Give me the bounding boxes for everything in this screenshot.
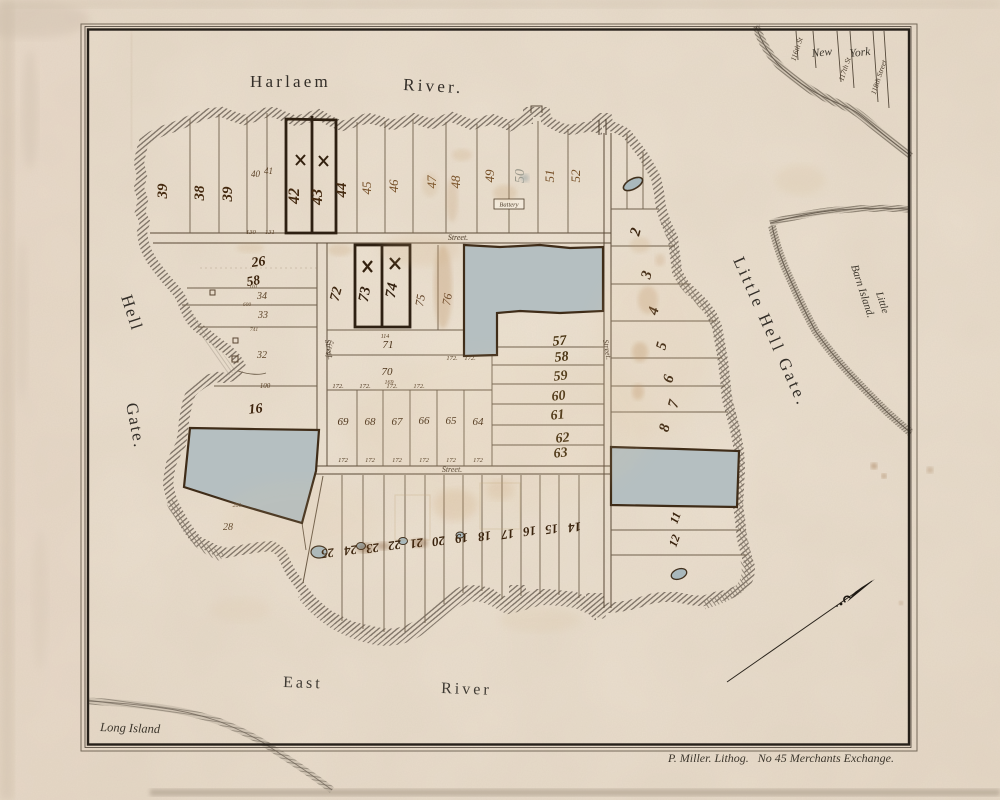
svg-text:69: 69 (338, 416, 350, 428)
svg-text:New: New (810, 46, 833, 60)
svg-text:26: 26 (250, 254, 267, 271)
svg-text:39: 39 (155, 183, 171, 200)
svg-text:19: 19 (454, 530, 469, 547)
svg-text:34: 34 (256, 291, 267, 302)
svg-text:38: 38 (192, 185, 208, 202)
svg-text:130: 130 (246, 229, 257, 236)
svg-text:172.: 172. (359, 383, 371, 390)
svg-text:39: 39 (220, 186, 236, 203)
svg-text:River.: River. (403, 75, 464, 97)
svg-text:49: 49 (482, 169, 497, 183)
svg-text:York: York (849, 46, 872, 60)
svg-text:Battery: Battery (499, 202, 518, 209)
svg-text:46: 46 (386, 179, 401, 193)
svg-text:17: 17 (500, 526, 515, 543)
svg-text:42: 42 (286, 188, 303, 205)
svg-text:600: 600 (243, 302, 252, 308)
svg-text:15: 15 (544, 521, 559, 538)
svg-text:44: 44 (334, 182, 350, 199)
svg-text:Long Island: Long Island (99, 720, 161, 736)
svg-text:45: 45 (359, 181, 374, 195)
svg-text:172.: 172. (332, 383, 344, 390)
svg-text:40: 40 (251, 169, 261, 179)
svg-text:172: 172 (338, 457, 349, 464)
svg-text:43: 43 (309, 189, 326, 206)
svg-text:100: 100 (260, 382, 271, 390)
svg-text:18: 18 (477, 528, 492, 545)
svg-text:33: 33 (257, 310, 268, 321)
svg-text:741: 741 (250, 326, 259, 333)
svg-text:East: East (283, 674, 323, 692)
svg-text:14: 14 (567, 519, 582, 536)
svg-text:131: 131 (265, 229, 275, 236)
svg-text:P. Miller. Lithog. No 45 Mer: P. Miller. Lithog. No 45 Merchants Excha… (667, 751, 894, 765)
svg-text:16: 16 (522, 523, 537, 540)
svg-text:52: 52 (568, 169, 583, 183)
svg-text:51: 51 (542, 170, 557, 183)
svg-text:75: 75 (412, 293, 428, 307)
svg-text:16: 16 (248, 401, 263, 417)
svg-text:32: 32 (256, 350, 267, 361)
svg-text:River: River (441, 680, 492, 699)
svg-text:110: 110 (249, 284, 257, 290)
svg-text:20: 20 (431, 533, 447, 550)
svg-text:41: 41 (264, 166, 273, 176)
svg-text:57: 57 (552, 333, 568, 349)
svg-text:71: 71 (383, 339, 394, 351)
svg-text:Harlaem: Harlaem (250, 72, 331, 91)
